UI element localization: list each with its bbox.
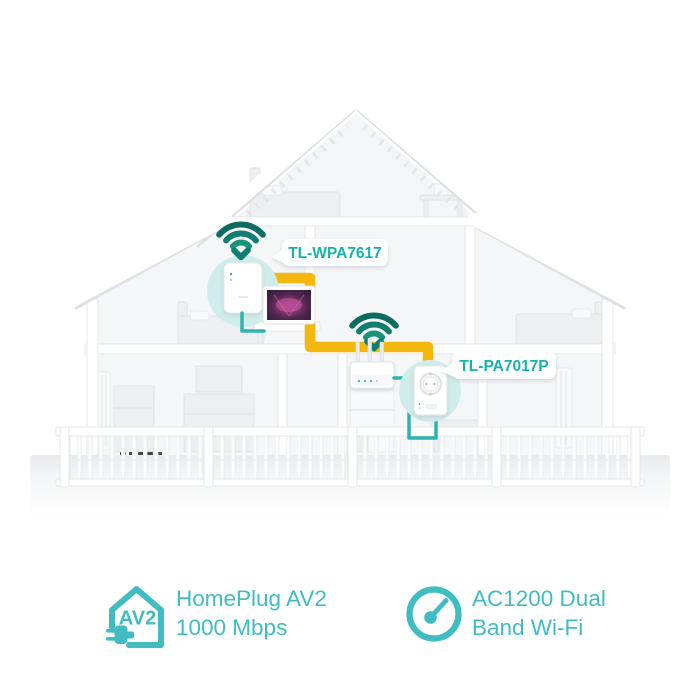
wifi-extender-device <box>224 263 262 313</box>
feature-2-text: AC1200 Dual Band Wi-Fi <box>472 584 606 642</box>
label-bubble-adapter: TL-PA7017P <box>441 352 556 379</box>
speedometer-icon <box>404 584 464 644</box>
television <box>263 286 315 324</box>
house-cutaway-illustration: TL-WPA7617 TL-PA7017P <box>0 0 700 560</box>
attic-floor-slab <box>226 217 486 226</box>
product-diagram-page: TL-WPA7617 TL-PA7017P AV2 HomePlug AV2 1… <box>0 0 700 700</box>
feature-2-line-1: AC1200 Dual <box>472 584 606 613</box>
feature-1-line-1: HomePlug AV2 <box>176 584 327 613</box>
homeplug-av2-house-plug-icon: AV2 <box>101 577 167 657</box>
feature-1-line-2: 1000 Mbps <box>176 613 327 642</box>
balcony-fence <box>56 427 644 487</box>
extender-label: TL-WPA7617 <box>288 245 382 262</box>
feature-2-line-2: Band Wi-Fi <box>472 613 606 642</box>
label-bubble-extender: TL-WPA7617 <box>271 239 388 266</box>
powerline-adapter-device <box>414 366 447 415</box>
feature-1-text: HomePlug AV2 1000 Mbps <box>176 584 327 642</box>
adapter-label: TL-PA7017P <box>459 358 548 375</box>
middle-wall-2 <box>465 225 475 344</box>
